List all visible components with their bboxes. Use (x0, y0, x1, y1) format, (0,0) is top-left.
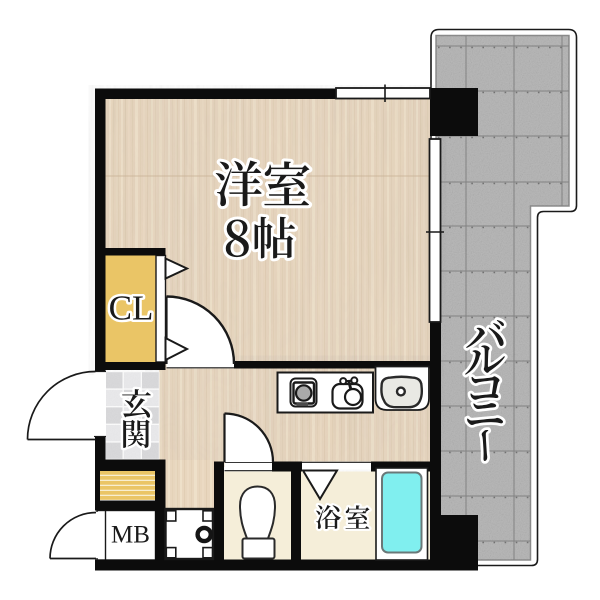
svg-text:CL: CL (109, 289, 154, 328)
svg-text:MB: MB (111, 522, 150, 549)
